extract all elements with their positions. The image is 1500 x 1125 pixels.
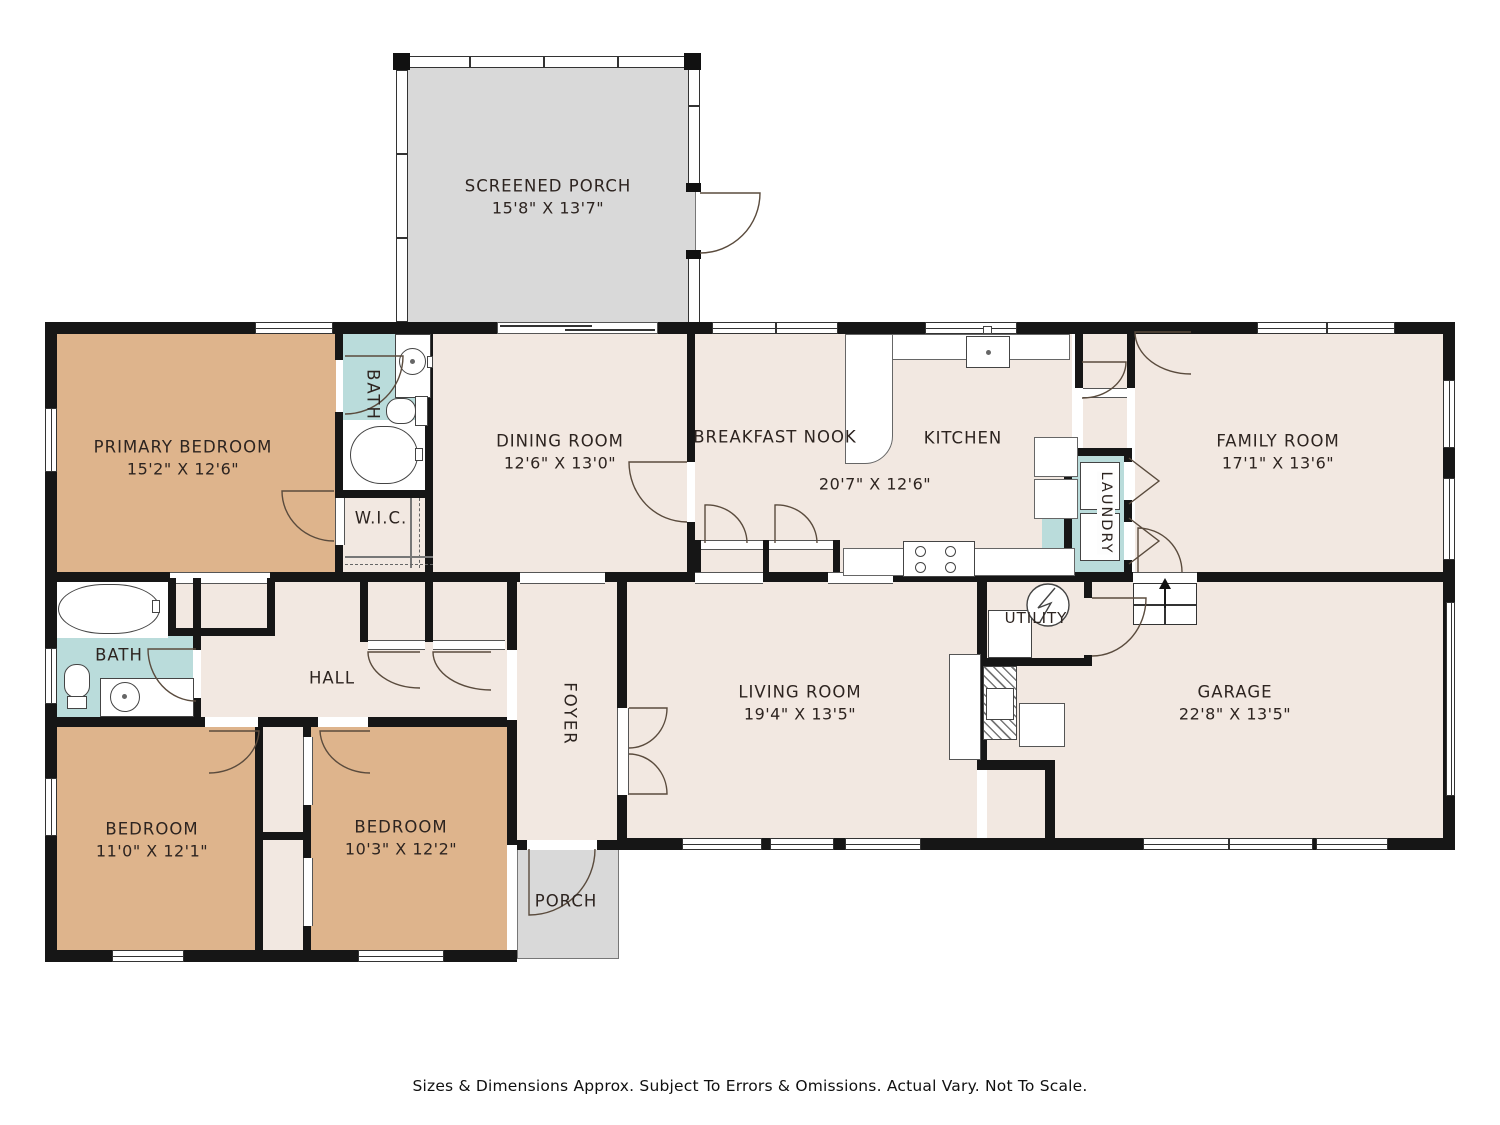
room-label-living-room: LIVING ROOM 19'4" X 13'5" [738, 683, 861, 724]
utility-door-arc [1090, 596, 1148, 658]
wall [507, 720, 517, 845]
passage-floor [1083, 398, 1127, 448]
window [45, 778, 57, 836]
wall [267, 578, 275, 632]
porch-screen-wall-right-upper [688, 56, 700, 190]
room-label-garage: GARAGE 22'8" X 13'5" [1179, 683, 1291, 724]
sliding-door-panel [565, 329, 655, 331]
wall [1084, 578, 1092, 598]
closet-line [345, 556, 433, 558]
wall [977, 578, 987, 666]
family-room-door-arc [1133, 330, 1193, 376]
closet-slider [303, 858, 313, 926]
foyer-double-door-arc [627, 752, 669, 796]
wall [45, 572, 170, 582]
wall [258, 717, 318, 727]
window [1443, 380, 1455, 448]
window [1143, 838, 1313, 850]
bathtub-icon [350, 426, 418, 484]
disclaimer-text: Sizes & Dimensions Approx. Subject To Er… [412, 1077, 1087, 1095]
bedroom-door-arc [207, 729, 261, 775]
window [712, 322, 838, 334]
wic-door-arc [280, 489, 336, 543]
bedroom-door-arc [318, 729, 372, 775]
wall [45, 717, 205, 727]
burner [915, 562, 926, 573]
nook-closet-door-arc [773, 503, 821, 545]
stairs-up-arrow-icon [1155, 576, 1175, 610]
room-label-front-porch: PORCH [535, 892, 598, 911]
wall [270, 572, 435, 582]
window [682, 838, 762, 850]
wall [425, 578, 433, 642]
window [925, 322, 1017, 334]
hearth [949, 654, 981, 760]
wall [1197, 572, 1455, 582]
garage-door [1446, 602, 1455, 796]
toilet-tank [67, 696, 87, 709]
window [1316, 838, 1388, 850]
wall [617, 795, 627, 838]
hall-closet-door-arc [366, 650, 422, 690]
wall [687, 522, 695, 572]
burner [945, 562, 956, 573]
window [845, 838, 921, 850]
room-label-primary-bedroom: PRIMARY BEDROOM 15'2" X 12'6" [94, 438, 273, 479]
wall [507, 578, 517, 650]
wall [335, 412, 343, 494]
label-kitchen-nook-dims: 20'7" X 12'6" [819, 475, 931, 494]
foyer-double-door-arc [627, 706, 669, 750]
porch-door-arc [698, 190, 762, 256]
hall-bath-door-arc [146, 647, 198, 703]
toilet-tank [415, 396, 428, 426]
window [1443, 478, 1455, 560]
window [45, 408, 57, 472]
window [358, 950, 444, 962]
room-label-kitchen: KITCHEN [924, 429, 1003, 448]
sliding-door-panel [500, 325, 592, 327]
toilet-icon [64, 664, 90, 698]
wall [255, 832, 311, 840]
wall [335, 490, 433, 498]
room-label-hall: HALL [309, 669, 355, 688]
foyer-dining-opening [520, 572, 605, 584]
wall [360, 578, 368, 642]
burner [945, 546, 956, 557]
wic-door-opening [335, 494, 345, 545]
room-label-wic: W.I.C. [355, 509, 408, 528]
sink-drain [122, 694, 127, 699]
window [1257, 322, 1395, 334]
window [770, 838, 834, 850]
closet-rod [419, 498, 420, 568]
burner [915, 546, 926, 557]
nook-closet-door-arc [703, 503, 751, 545]
faucet-icon [152, 600, 160, 613]
room-label-bedroom-left: BEDROOM 11'0" X 12'1" [96, 820, 208, 861]
firebox [986, 688, 1014, 720]
laundry-bifold-icon [1126, 456, 1164, 506]
wall [1045, 770, 1055, 838]
wall [1443, 588, 1455, 602]
porch-screen-wall-left [396, 56, 408, 322]
closet-rod [345, 564, 433, 565]
wall [1443, 796, 1455, 810]
room-label-primary-bath: BATH [364, 369, 383, 421]
closet-opening [433, 640, 505, 650]
wall [763, 572, 828, 582]
porch-screen-wall-right-lower [688, 252, 700, 324]
room-label-hall-bath: BATH [95, 646, 143, 665]
sink-drain [986, 350, 991, 355]
faucet-icon [427, 356, 433, 368]
sliding-door [497, 322, 658, 334]
room-label-screened-porch: SCREENED PORCH 15'8" X 13'7" [465, 177, 632, 218]
floor-plan: SCREENED PORCH 15'8" X 13'7" PRIMARY BED… [0, 0, 1500, 1125]
wall [168, 628, 275, 636]
refrigerator-icon [1034, 437, 1078, 477]
hearth [1019, 703, 1065, 747]
room-label-breakfast-nook: BREAKFAST NOOK [693, 428, 857, 447]
wall [368, 717, 507, 727]
wall [335, 545, 343, 572]
stove-icon [903, 541, 975, 577]
pantry-cabinet [1034, 479, 1078, 519]
dining-door-arc [627, 460, 689, 524]
porch-screen-wall-top [396, 56, 696, 68]
sink-drain [410, 359, 415, 364]
cased-opening [695, 572, 763, 584]
passage-door-arc [1080, 360, 1128, 400]
hall-closet-door-arc [431, 650, 493, 692]
bathtub-icon [58, 584, 160, 634]
wall [833, 540, 840, 572]
room-label-laundry: LAUNDRY [1097, 472, 1115, 555]
wall [168, 578, 176, 632]
wall [193, 578, 201, 650]
room-label-utility: UTILITY [1005, 609, 1068, 627]
room-label-family-room: FAMILY ROOM 17'1" X 13'6" [1216, 432, 1339, 473]
porch-post [393, 53, 410, 70]
window [255, 322, 333, 334]
wall [977, 658, 1092, 666]
window [45, 648, 57, 704]
window [112, 950, 184, 962]
room-label-bedroom-middle: BEDROOM 10'3" X 12'2" [345, 818, 457, 859]
closet-line [410, 498, 412, 568]
room-label-foyer: FOYER [561, 682, 580, 746]
closet-opening [368, 640, 425, 650]
wall [335, 332, 343, 360]
faucet-icon [983, 326, 992, 334]
porch-post [684, 53, 701, 70]
family-garage-door-arc [1136, 526, 1196, 574]
wall [617, 578, 627, 708]
closet-slider [303, 737, 313, 805]
wall [977, 760, 1055, 770]
faucet-icon [415, 448, 423, 461]
room-label-dining-room: DINING ROOM 12'6" X 13'0" [496, 432, 624, 473]
closet-opening [170, 572, 270, 584]
